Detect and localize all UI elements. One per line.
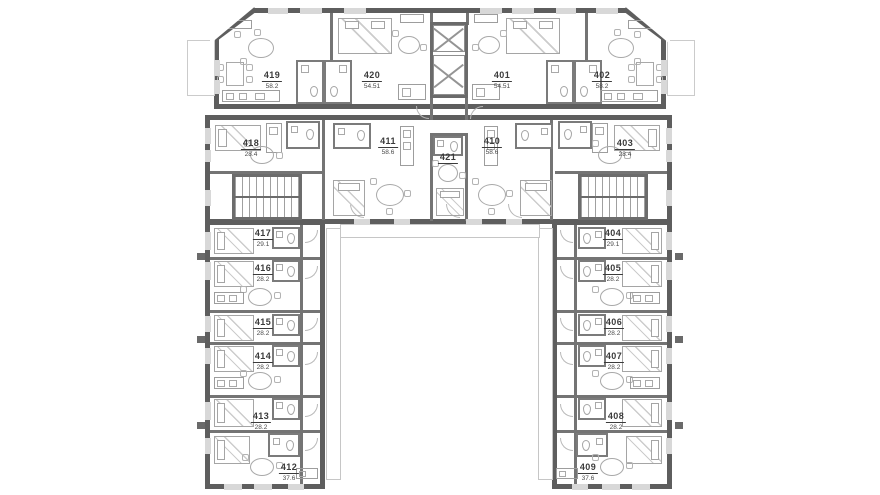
bed-icon	[622, 399, 662, 427]
window	[205, 190, 211, 206]
bed-icon	[214, 228, 254, 254]
room-label: 40328.4	[615, 134, 635, 158]
room-area: 28.4	[241, 152, 261, 159]
toilet-icon	[310, 86, 318, 97]
wall-fin	[197, 336, 205, 343]
toilet-icon	[286, 440, 294, 451]
wall-fin	[197, 253, 205, 260]
window	[268, 8, 288, 14]
sink-icon	[595, 402, 602, 409]
window	[666, 150, 672, 162]
pillow	[651, 350, 659, 368]
chair-icon	[420, 44, 427, 51]
window	[394, 219, 410, 225]
room-number: 402	[592, 71, 612, 82]
sink-icon	[437, 140, 444, 147]
room-area: 58.6	[482, 150, 502, 157]
room-number: 408	[606, 412, 626, 423]
table-icon	[248, 372, 272, 390]
chair-icon	[254, 29, 261, 36]
room-label: 41237.6	[279, 458, 299, 482]
sink-icon	[339, 65, 347, 73]
bathroom-pod	[558, 121, 592, 149]
pillow	[217, 440, 225, 460]
appliance-icon	[476, 88, 485, 97]
table-icon	[438, 164, 458, 182]
chair-icon	[386, 208, 393, 215]
kitchen-counter-icon	[296, 468, 318, 479]
room-label: 40528.2	[603, 259, 623, 283]
partition-wall	[557, 395, 667, 398]
bathroom-pod	[578, 314, 606, 336]
appliance-icon	[255, 93, 265, 100]
room-label: 41958.2	[262, 66, 282, 90]
sink-icon	[551, 65, 559, 73]
table-icon	[600, 458, 624, 476]
bathroom-pod	[578, 345, 606, 367]
window	[288, 484, 304, 490]
bathroom-pod	[272, 227, 300, 249]
sink-icon	[276, 264, 283, 271]
bathroom-pod	[272, 345, 300, 367]
room-area: 28.2	[606, 425, 626, 432]
wall-fin	[675, 422, 683, 429]
table-icon	[398, 36, 420, 54]
pillow	[648, 129, 657, 147]
chair-icon	[614, 29, 621, 36]
table-icon	[248, 288, 272, 306]
room-number: 416	[253, 264, 273, 275]
pillow	[651, 319, 659, 337]
sink-icon	[595, 231, 602, 238]
room-label: 40828.2	[606, 407, 626, 431]
appliance-icon	[217, 295, 225, 302]
room-number: 411	[378, 137, 398, 148]
floor-plan: 41958.2 42054.51 40154.51 40258.2 41828.…	[0, 0, 880, 495]
stairs-landing-line	[581, 196, 645, 198]
window	[354, 219, 370, 225]
bathroom-pod	[268, 433, 300, 457]
window	[572, 484, 588, 490]
kitchen-counter-icon	[222, 90, 280, 102]
bathroom-pod	[286, 121, 320, 149]
room-number: 410	[482, 137, 502, 148]
bathroom-pod	[272, 314, 300, 336]
room-label: 40628.2	[604, 313, 624, 337]
window	[205, 128, 211, 144]
toilet-icon	[583, 266, 591, 277]
window	[205, 438, 211, 454]
bathroom-pod	[578, 260, 606, 282]
kitchen-counter-icon	[600, 90, 658, 102]
wall-fin	[675, 253, 683, 260]
partition-wall	[465, 98, 468, 120]
room-label: 40154.51	[492, 66, 512, 90]
elevator-cab-icon	[433, 25, 465, 52]
chair-icon	[242, 454, 249, 461]
bathroom-pod	[578, 398, 606, 420]
kitchen-counter-icon	[400, 126, 414, 166]
appliance-icon	[217, 380, 225, 387]
chair-icon	[488, 208, 495, 215]
room-label: 421	[438, 148, 458, 164]
window	[480, 8, 502, 14]
chair-icon	[626, 462, 633, 469]
wardrobe-icon	[474, 14, 498, 23]
window	[666, 232, 672, 250]
bed-icon	[338, 18, 392, 54]
table-icon	[478, 36, 500, 54]
toilet-icon	[287, 404, 295, 415]
pillow	[217, 232, 225, 250]
pillow	[513, 21, 527, 29]
chair-icon	[628, 76, 635, 83]
bed-icon	[214, 315, 254, 341]
appliance-icon	[645, 380, 653, 387]
room-area: 37.6	[279, 476, 299, 483]
window	[205, 316, 211, 332]
room-area: 28.2	[253, 277, 273, 284]
chair-icon	[276, 152, 283, 159]
table-icon	[376, 184, 404, 206]
toilet-icon	[583, 351, 591, 362]
bed-icon	[436, 188, 464, 216]
room-area: 29.1	[603, 242, 623, 249]
pillow	[217, 319, 225, 337]
room-number: 403	[615, 139, 635, 150]
appliance-icon	[595, 127, 604, 135]
window	[666, 348, 672, 364]
window	[666, 316, 672, 332]
toilet-icon	[287, 351, 295, 362]
chair-icon	[246, 76, 253, 83]
kitchen-counter-icon	[556, 468, 578, 479]
toilet-icon	[580, 86, 588, 97]
pillow	[440, 191, 460, 198]
stairs-landing-line	[235, 196, 299, 198]
appliance-icon	[633, 93, 643, 100]
bed-icon	[506, 18, 560, 54]
window	[466, 219, 482, 225]
room-label: 40937.6	[578, 458, 598, 482]
sink-icon	[595, 349, 602, 356]
balcony	[538, 228, 553, 480]
window	[214, 60, 220, 76]
appliance-icon	[559, 471, 566, 477]
pillow	[217, 403, 225, 423]
pillow	[651, 440, 659, 460]
chair-icon	[404, 190, 411, 197]
sink-icon	[338, 128, 345, 135]
window	[666, 128, 672, 144]
partition-wall	[585, 13, 588, 63]
chair-icon	[592, 370, 599, 377]
toilet-icon	[330, 86, 338, 97]
appliance-icon	[299, 471, 306, 477]
room-label: 40429.1	[603, 224, 623, 248]
table-icon	[478, 184, 506, 206]
chair-icon	[592, 140, 599, 147]
sink-icon	[596, 438, 603, 445]
sink-icon	[276, 349, 283, 356]
partition-wall	[300, 225, 303, 484]
room-number: 419	[262, 71, 282, 82]
table-icon	[248, 38, 274, 58]
room-label: 41058.6	[482, 132, 502, 156]
bathroom-pod	[515, 123, 553, 149]
toilet-icon	[582, 440, 590, 451]
pillow	[371, 21, 385, 29]
room-area: 28.2	[253, 365, 273, 372]
room-area: 28.2	[251, 425, 271, 432]
chair-icon	[370, 178, 377, 185]
partition-wall	[210, 395, 320, 398]
toilet-icon	[287, 233, 295, 244]
room-area: 58.2	[262, 84, 282, 91]
room-area: 54.51	[492, 84, 512, 91]
chair-icon	[234, 31, 241, 38]
appliance-icon	[229, 295, 237, 302]
chair-icon	[500, 30, 507, 37]
toilet-icon	[521, 130, 529, 141]
table-icon	[608, 38, 634, 58]
chair-icon	[472, 44, 479, 51]
window	[254, 484, 272, 490]
window	[205, 232, 211, 250]
window	[205, 150, 211, 162]
terrace	[667, 40, 695, 96]
dining-table-icon	[226, 62, 244, 86]
partition-wall	[322, 120, 325, 220]
window	[596, 8, 618, 14]
room-area: 28.2	[604, 331, 624, 338]
appliance-icon	[226, 93, 234, 100]
bathroom-pod	[578, 227, 606, 249]
chair-icon	[392, 30, 399, 37]
room-number: 409	[578, 463, 598, 474]
pillow	[539, 21, 553, 29]
room-number: 415	[253, 318, 273, 329]
stairs-icon	[578, 174, 648, 220]
sink-icon	[276, 318, 283, 325]
room-area: 28.2	[253, 331, 273, 338]
window	[632, 484, 650, 490]
partition-wall	[430, 98, 433, 120]
window	[666, 402, 672, 420]
window	[214, 80, 220, 94]
toilet-icon	[583, 320, 591, 331]
window	[205, 348, 211, 364]
window	[556, 8, 576, 14]
bathroom-pod	[296, 60, 324, 104]
sink-icon	[541, 128, 548, 135]
chair-icon	[592, 286, 599, 293]
room-number: 412	[279, 463, 299, 474]
room-number: 414	[253, 352, 273, 363]
toilet-icon	[306, 129, 314, 140]
room-number: 401	[492, 71, 512, 82]
wardrobe-icon	[400, 14, 424, 23]
room-area: 28.2	[604, 365, 624, 372]
room-number: 413	[251, 412, 271, 423]
table-icon	[600, 372, 624, 390]
bed-icon	[622, 261, 662, 287]
table-icon	[600, 288, 624, 306]
window	[300, 8, 322, 14]
pillow	[525, 183, 547, 191]
pillow	[345, 21, 359, 29]
table-icon	[250, 458, 274, 476]
pillow	[651, 232, 659, 250]
bed-icon	[622, 315, 662, 341]
window	[224, 484, 242, 490]
appliance-icon	[229, 380, 237, 387]
sink-icon	[301, 65, 309, 73]
terrace	[187, 40, 215, 96]
room-number: 421	[438, 153, 458, 164]
window	[205, 402, 211, 420]
room-area: 58.2	[592, 84, 612, 91]
bathroom-pod	[546, 60, 574, 104]
room-label: 41729.1	[253, 224, 273, 248]
partition-wall	[330, 13, 333, 63]
kitchen-counter-icon	[630, 377, 660, 389]
sink-icon	[276, 231, 283, 238]
chair-icon	[628, 64, 635, 71]
room-area: 58.6	[378, 150, 398, 157]
room-number: 407	[604, 352, 624, 363]
bed-icon	[333, 180, 365, 216]
appliance-icon	[617, 93, 625, 100]
bed-icon	[622, 346, 662, 372]
stairs-icon	[232, 174, 302, 220]
bed-icon	[520, 180, 552, 216]
window	[661, 60, 667, 76]
elevator-cab-icon	[433, 55, 465, 95]
kitchen-counter-icon	[630, 292, 660, 304]
toilet-icon	[564, 129, 572, 140]
chair-icon	[274, 292, 281, 299]
toilet-icon	[287, 266, 295, 277]
room-area: 37.6	[578, 476, 598, 483]
pillow	[651, 265, 659, 283]
room-area: 54.51	[362, 84, 382, 91]
appliance-icon	[633, 380, 641, 387]
window	[661, 80, 667, 94]
room-label: 41828.4	[241, 134, 261, 158]
pillow	[338, 183, 360, 191]
bed-icon	[626, 436, 662, 464]
room-label: 41528.2	[253, 313, 273, 337]
chair-icon	[459, 172, 466, 179]
sink-icon	[291, 126, 298, 133]
pillow	[651, 403, 659, 423]
room-number: 418	[241, 139, 261, 150]
toilet-icon	[357, 130, 365, 141]
bed-icon	[214, 399, 254, 427]
sink-icon	[595, 264, 602, 271]
chair-icon	[274, 376, 281, 383]
chair-icon	[472, 178, 479, 185]
dining-table-icon	[636, 62, 654, 86]
window	[205, 262, 211, 280]
pillow	[217, 350, 225, 368]
sink-icon	[273, 438, 280, 445]
kitchen-counter-icon	[398, 84, 426, 100]
room-number: 404	[603, 229, 623, 240]
room-label: 41328.2	[251, 407, 271, 431]
wall-fin	[197, 422, 205, 429]
sink-icon	[276, 402, 283, 409]
toilet-icon	[583, 404, 591, 415]
toilet-icon	[287, 320, 295, 331]
room-number: 420	[362, 71, 382, 82]
toilet-icon	[583, 233, 591, 244]
kitchen-counter-icon	[214, 377, 244, 389]
wall-fin	[675, 336, 683, 343]
room-label: 41428.2	[253, 347, 273, 371]
window	[506, 219, 522, 225]
room-number: 405	[603, 264, 623, 275]
balcony	[326, 228, 341, 480]
pillow	[217, 265, 225, 283]
window	[512, 8, 534, 14]
chair-icon	[240, 370, 247, 377]
room-area: 28.2	[603, 277, 623, 284]
bathroom-pod	[333, 123, 371, 149]
appliance-icon	[402, 88, 411, 97]
bathroom-pod	[324, 60, 352, 104]
toilet-icon	[560, 86, 568, 97]
sink-icon	[580, 126, 587, 133]
bed-icon	[214, 261, 254, 287]
sink-icon	[595, 318, 602, 325]
window	[602, 484, 620, 490]
room-area: 29.1	[253, 242, 273, 249]
partition-wall	[557, 342, 667, 345]
window	[344, 8, 366, 14]
room-label: 40258.2	[592, 66, 612, 90]
chair-icon	[246, 64, 253, 71]
room-area: 28.4	[615, 152, 635, 159]
window	[666, 190, 672, 206]
room-number: 417	[253, 229, 273, 240]
balcony	[340, 224, 540, 238]
partition-wall	[210, 342, 320, 345]
room-number: 406	[604, 318, 624, 329]
bathroom-pod	[272, 398, 300, 420]
room-label: 41628.2	[253, 259, 273, 283]
chair-icon	[506, 190, 513, 197]
window	[666, 262, 672, 280]
room-label: 42054.51	[362, 66, 382, 90]
bed-icon	[214, 346, 254, 372]
appliance-icon	[269, 127, 278, 135]
appliance-icon	[403, 142, 411, 150]
kitchen-counter-icon	[214, 292, 244, 304]
appliance-icon	[604, 93, 612, 100]
bed-icon	[622, 228, 662, 254]
appliance-icon	[645, 295, 653, 302]
pillow	[218, 129, 227, 147]
window	[666, 438, 672, 454]
appliance-icon	[403, 130, 411, 138]
chair-icon	[634, 31, 641, 38]
appliance-icon	[633, 295, 641, 302]
appliance-icon	[239, 93, 247, 100]
room-label: 40728.2	[604, 347, 624, 371]
bathroom-pod	[272, 260, 300, 282]
